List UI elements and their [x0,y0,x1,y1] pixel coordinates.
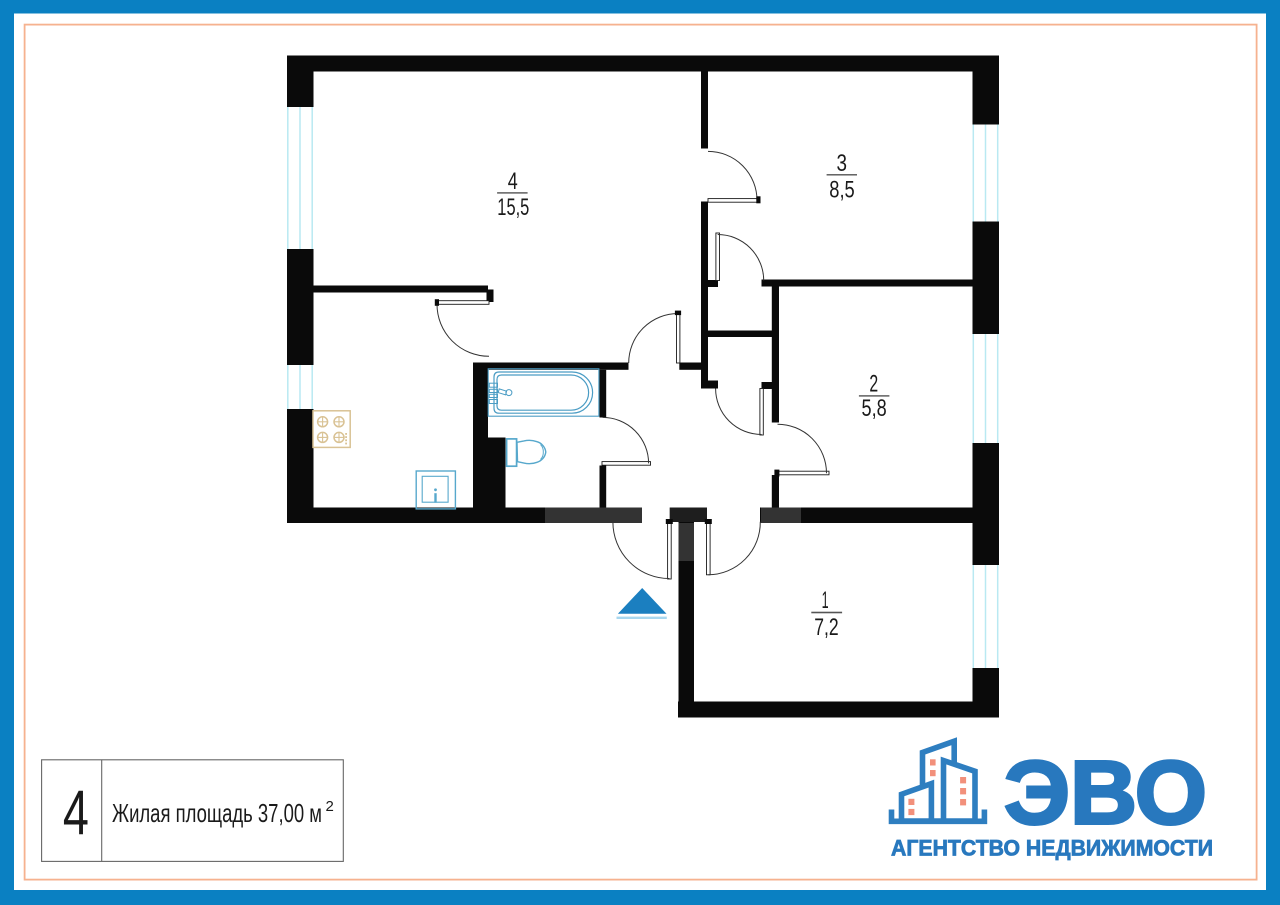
svg-text:4: 4 [63,779,89,849]
svg-text:5,8: 5,8 [862,395,887,422]
svg-text:АГЕНТСТВО НЕДВИЖИМОСТИ: АГЕНТСТВО НЕДВИЖИМОСТИ [891,836,1213,861]
svg-text:15,5: 15,5 [497,194,529,221]
svg-text:3: 3 [837,150,848,177]
svg-text:4: 4 [508,168,518,195]
svg-text:1: 1 [822,587,829,614]
svg-text:7,2: 7,2 [814,614,838,641]
svg-text:Жилая площадь 37,00 м: Жилая площадь 37,00 м [112,798,322,828]
svg-text:2: 2 [326,798,334,815]
svg-text:2: 2 [869,371,878,398]
svg-text:8,5: 8,5 [829,177,855,204]
svg-text:ЭВО: ЭВО [1004,744,1207,844]
